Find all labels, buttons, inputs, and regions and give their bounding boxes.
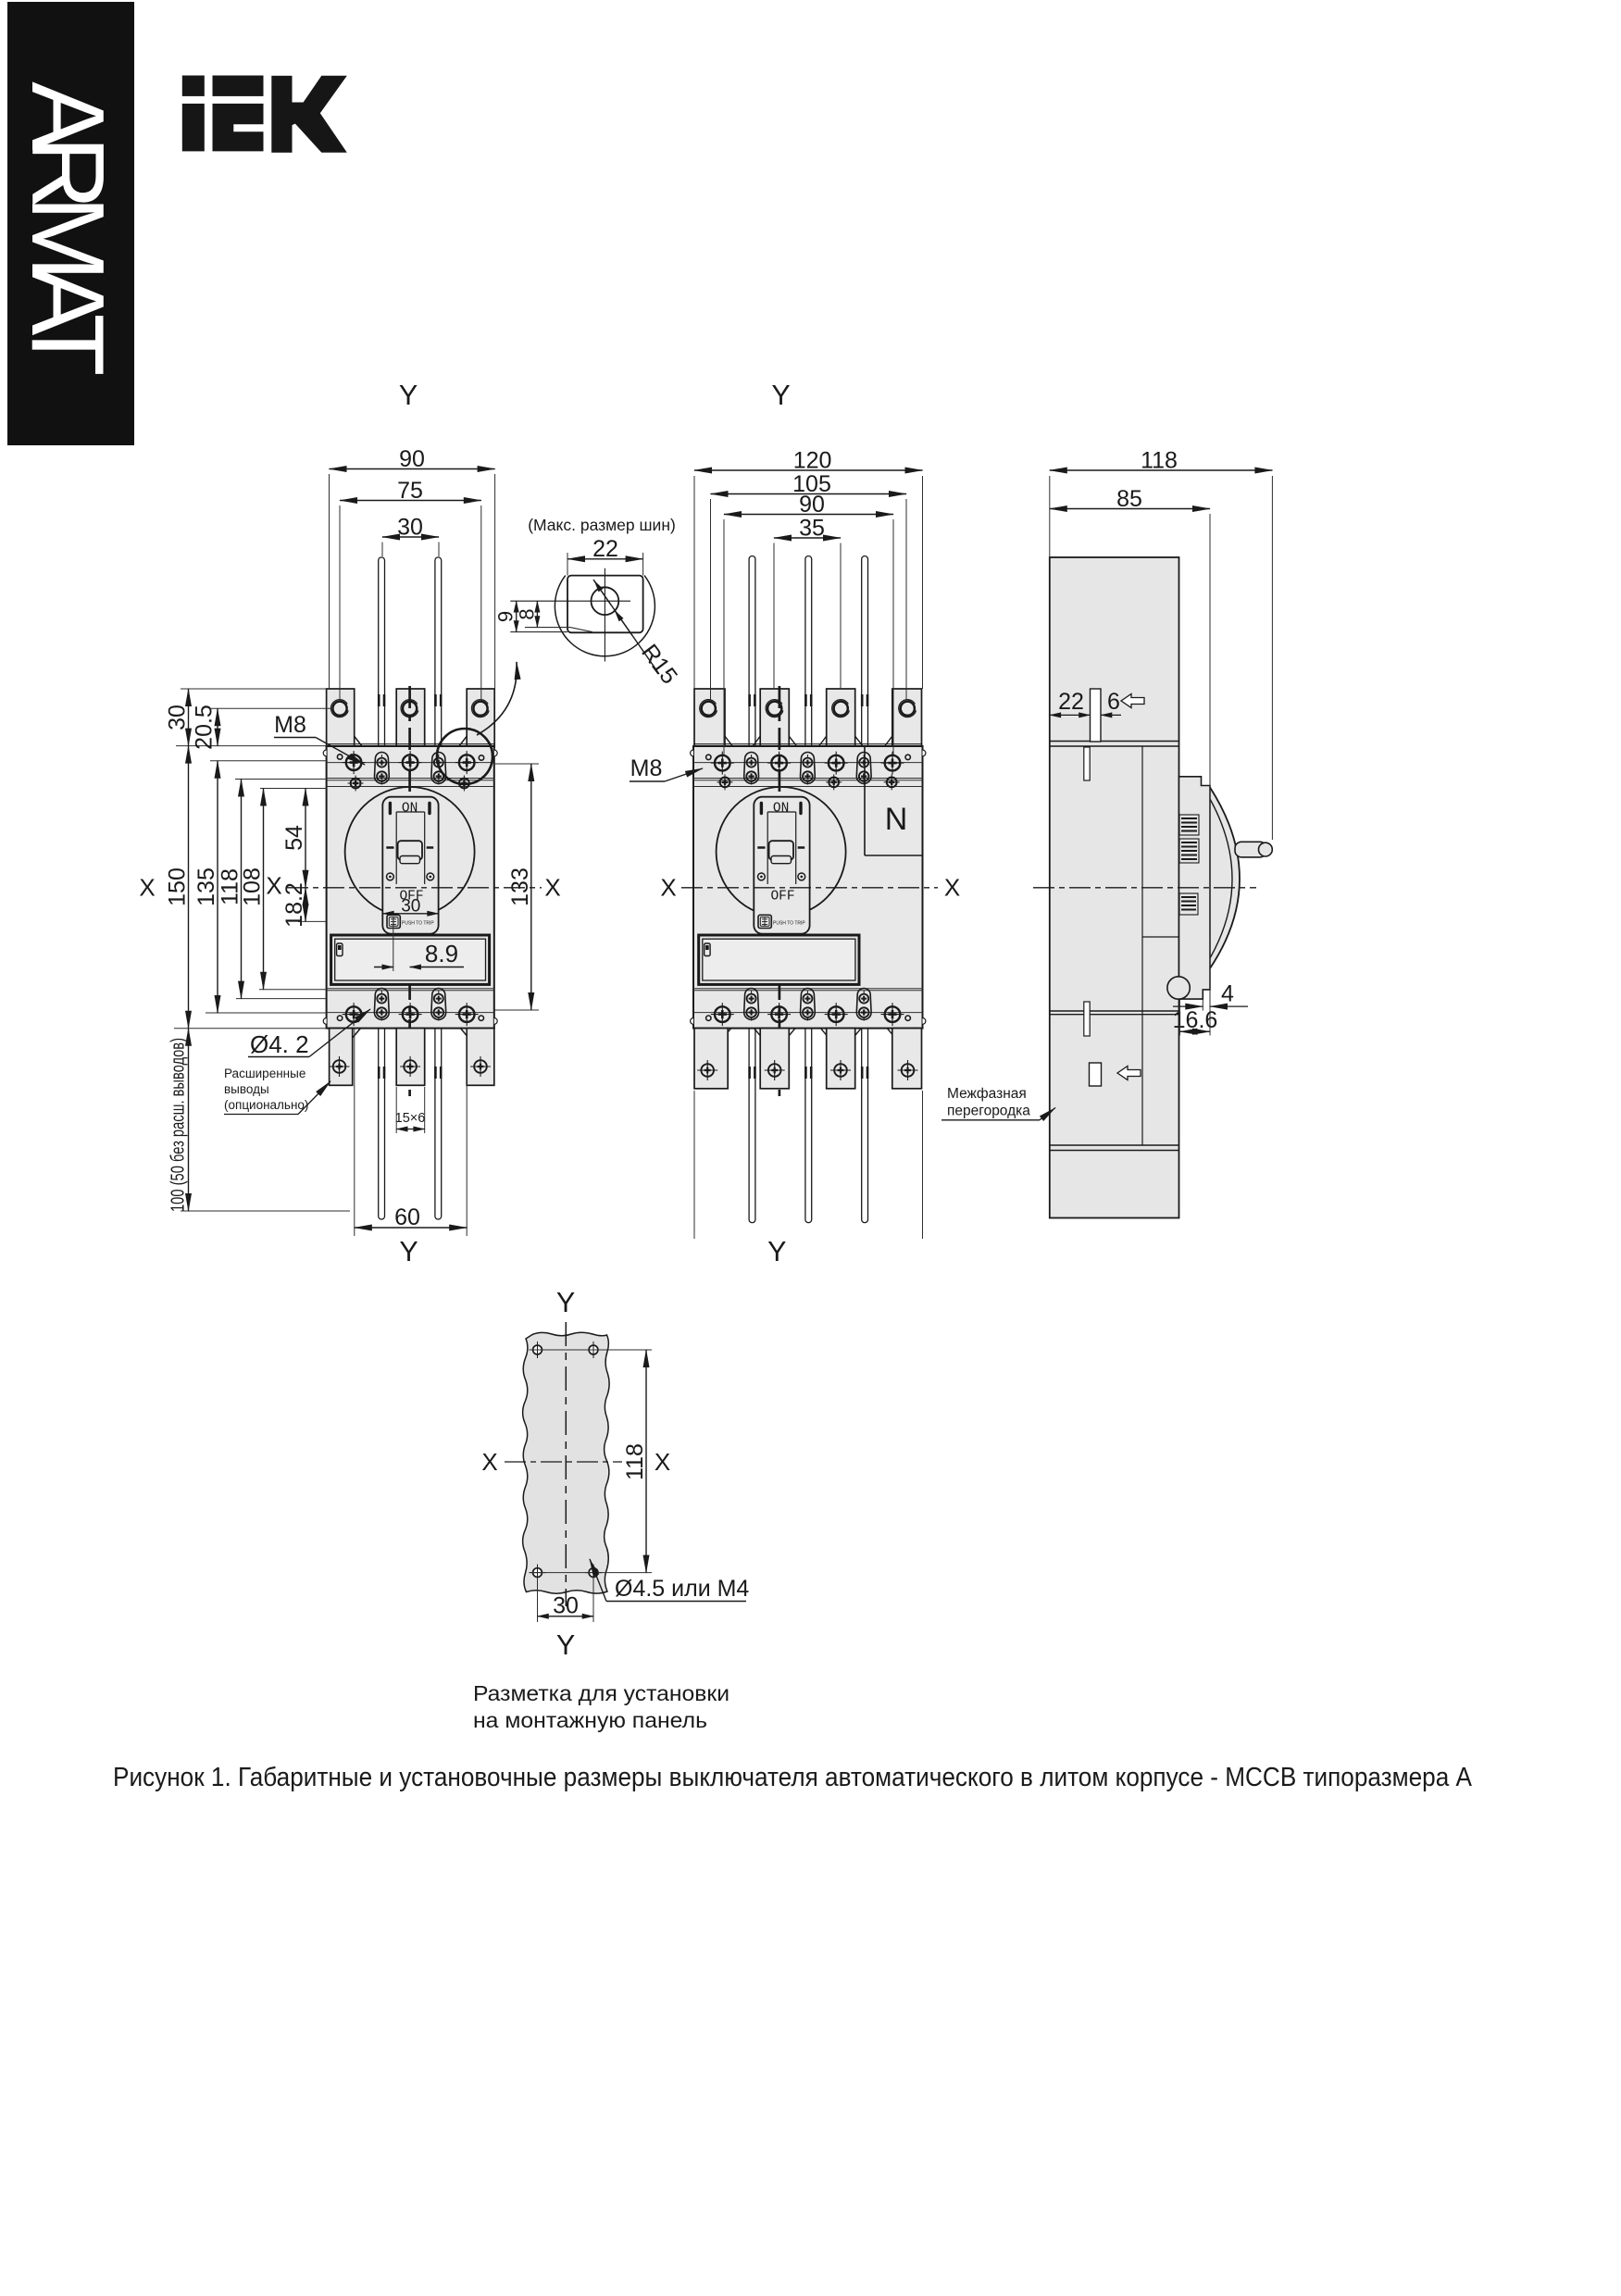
svg-text:M8: M8 <box>274 712 306 738</box>
svg-text:ON: ON <box>402 802 418 817</box>
svg-text:100 (50 без расш. выводов): 100 (50 без расш. выводов) <box>168 1038 189 1212</box>
svg-text:8.9: 8.9 <box>425 940 458 967</box>
svg-text:9: 9 <box>494 611 517 622</box>
svg-text:133: 133 <box>507 867 533 906</box>
svg-text:4: 4 <box>1221 981 1234 1007</box>
svg-text:18.2: 18.2 <box>281 882 307 928</box>
svg-text:Y: Y <box>556 1629 575 1661</box>
svg-text:Рисунок 1. Габаритные и устано: Рисунок 1. Габаритные и установочные раз… <box>113 1763 1473 1792</box>
svg-text:Межфазная: Межфазная <box>947 1086 1027 1102</box>
svg-text:на монтажную панель: на монтажную панель <box>473 1708 707 1732</box>
svg-text:Y: Y <box>399 380 418 411</box>
svg-text:ARMAT: ARMAT <box>10 81 125 374</box>
svg-text:108: 108 <box>240 867 266 906</box>
svg-text:54: 54 <box>281 825 307 851</box>
svg-text:Ø4. 2: Ø4. 2 <box>250 1030 309 1058</box>
svg-text:X: X <box>655 1448 670 1476</box>
svg-text:X: X <box>944 874 960 902</box>
svg-text:15×6: 15×6 <box>395 1111 426 1126</box>
svg-text:X: X <box>266 872 281 900</box>
svg-text:M8: M8 <box>630 755 663 781</box>
svg-text:N: N <box>885 802 908 837</box>
svg-text:118: 118 <box>622 1443 648 1480</box>
svg-text:6: 6 <box>1107 689 1120 715</box>
svg-text:X: X <box>481 1448 497 1476</box>
svg-text:150: 150 <box>165 867 191 906</box>
svg-text:135: 135 <box>193 867 219 906</box>
svg-text:Расширенные: Расширенные <box>224 1067 305 1080</box>
svg-text:PUSH TO TRIP: PUSH TO TRIP <box>773 921 805 927</box>
svg-text:Разметка для установки: Разметка для установки <box>473 1681 729 1705</box>
svg-text:22: 22 <box>592 536 618 562</box>
svg-text:PUSH TO TRIP: PUSH TO TRIP <box>402 921 434 927</box>
svg-text:20.5: 20.5 <box>192 705 218 750</box>
svg-text:Ø4.5 или M4: Ø4.5 или M4 <box>615 1576 749 1602</box>
svg-text:Y: Y <box>399 1236 418 1267</box>
svg-text:(Макс. размер шин): (Макс. размер шин) <box>528 516 676 534</box>
svg-text:Y: Y <box>767 1236 786 1267</box>
svg-text:OFF: OFF <box>770 890 794 905</box>
svg-text:(опционально): (опционально) <box>224 1098 308 1112</box>
svg-text:перегородка: перегородка <box>947 1104 1030 1119</box>
svg-text:8: 8 <box>516 608 539 619</box>
svg-text:Y: Y <box>771 380 790 411</box>
svg-text:Y: Y <box>556 1287 575 1318</box>
svg-text:X: X <box>544 874 560 902</box>
svg-text:выводы: выводы <box>224 1082 269 1096</box>
svg-text:X: X <box>139 874 155 902</box>
svg-text:X: X <box>660 874 676 902</box>
svg-text:60: 60 <box>394 1204 420 1230</box>
svg-text:ON: ON <box>773 802 789 817</box>
svg-text:30: 30 <box>165 705 191 730</box>
svg-text:30: 30 <box>553 1593 579 1619</box>
svg-text:22: 22 <box>1058 689 1084 715</box>
